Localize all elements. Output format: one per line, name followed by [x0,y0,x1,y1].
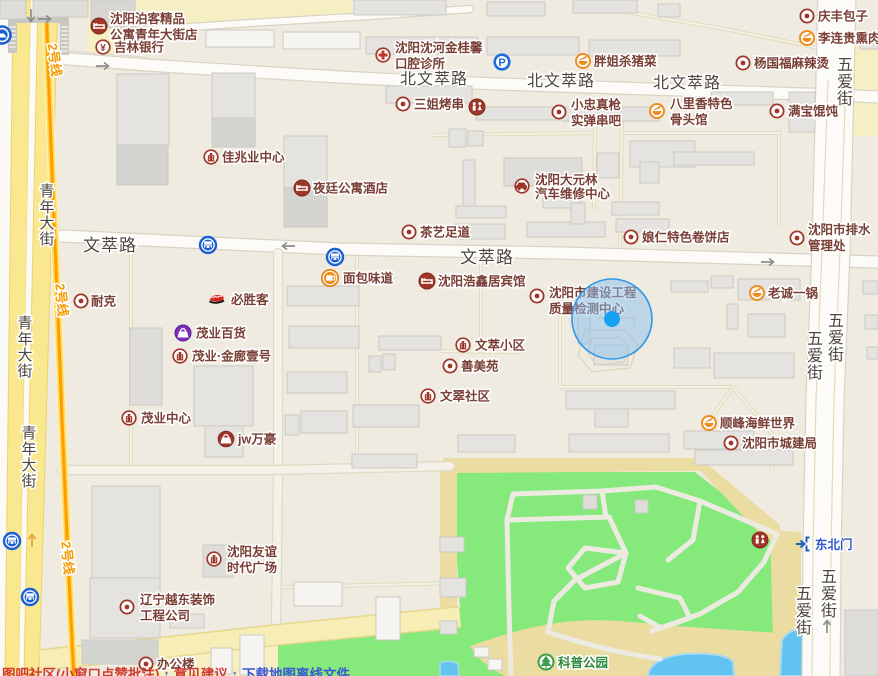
svg-text:汽车维修中心: 汽车维修中心 [535,186,611,201]
svg-text:茂业中心: 茂业中心 [141,411,192,426]
svg-text:北文萃路: 北文萃路 [653,74,721,92]
svg-text:工程公司: 工程公司 [140,608,190,623]
svg-text:胖姐杀猪菜: 胖姐杀猪菜 [593,54,657,69]
svg-text:北文萃路: 北文萃路 [527,72,595,90]
svg-text:管理处: 管理处 [808,238,846,253]
svg-text:老诚一锅: 老诚一锅 [767,286,819,301]
svg-text:文翠社区: 文翠社区 [440,389,491,404]
svg-text:吉林银行: 吉林银行 [114,40,165,55]
svg-text:茂业百货: 茂业百货 [196,326,247,341]
svg-text:P: P [498,57,505,69]
svg-text:三姐烤串: 三姐烤串 [414,97,464,112]
svg-text:jw万豪: jw万豪 [237,432,277,447]
svg-text:东北门: 东北门 [815,537,853,552]
svg-text:茶艺足道: 茶艺足道 [419,225,471,240]
svg-text:佳兆业中心: 佳兆业中心 [222,150,285,165]
svg-text:沈阳沈河金桂馨: 沈阳沈河金桂馨 [395,40,483,55]
svg-text:沈阳泊客精品: 沈阳泊客精品 [110,11,185,26]
svg-text:善美苑: 善美苑 [461,359,499,374]
svg-text:五爱街: 五爱街 [807,331,823,382]
svg-text:五爱街: 五爱街 [828,313,844,364]
svg-text:小忠真枪: 小忠真枪 [570,97,622,112]
svg-text:必胜客: 必胜客 [230,292,269,307]
svg-text:八里香特色: 八里香特色 [669,96,733,111]
svg-text:面包味道: 面包味道 [343,271,394,286]
svg-text:口腔诊所: 口腔诊所 [395,56,446,71]
svg-text:李连贵熏肉大饼: 李连贵熏肉大饼 [817,31,878,46]
svg-text:时代广场: 时代广场 [227,560,277,575]
svg-text:娘仁特色卷饼店: 娘仁特色卷饼店 [642,230,730,245]
svg-text:北文萃路: 北文萃路 [400,70,468,88]
svg-text:五爱街: 五爱街 [821,569,837,620]
svg-text:辽宁越东装饰: 辽宁越东装饰 [140,592,216,607]
svg-text:文萃路: 文萃路 [460,248,514,267]
svg-text:夜廷公寓酒店: 夜廷公寓酒店 [312,181,389,196]
svg-text:顺峰海鲜世界: 顺峰海鲜世界 [720,416,796,431]
svg-text:沈阳浩鑫居宾馆: 沈阳浩鑫居宾馆 [438,274,526,289]
svg-text:骨头馆: 骨头馆 [670,112,708,127]
svg-text:实弹串吧: 实弹串吧 [571,113,622,128]
svg-text:图吧社区(小窗口点赞批注) ↑ 意见建议 ↑ 下载地图离线文: 图吧社区(小窗口点赞批注) ↑ 意见建议 ↑ 下载地图离线文件 [2,666,351,676]
svg-text:耐克: 耐克 [91,294,117,309]
svg-text:五爱街: 五爱街 [837,57,853,108]
svg-text:沈阳市排水: 沈阳市排水 [808,222,871,237]
svg-text:庆丰包子: 庆丰包子 [817,9,869,24]
svg-text:文萃路: 文萃路 [83,236,137,255]
svg-text:沈阳市城建局: 沈阳市城建局 [742,436,817,451]
svg-text:科普公园: 科普公园 [558,655,608,670]
svg-text:杨国福麻辣烫: 杨国福麻辣烫 [754,56,830,71]
svg-text:青年大街: 青年大街 [39,183,54,248]
svg-text:沈阳大元林: 沈阳大元林 [535,172,598,187]
svg-text:五爱街: 五爱街 [796,586,812,637]
svg-text:文萃小区: 文萃小区 [475,338,526,353]
svg-text:满宝馄饨: 满宝馄饨 [788,104,839,119]
svg-text:沈阳友谊: 沈阳友谊 [227,544,278,559]
svg-text:青年大街: 青年大街 [17,315,32,380]
svg-text:¥: ¥ [100,43,106,54]
svg-text:茂业·金廊壹号: 茂业·金廊壹号 [192,349,271,364]
svg-text:青年大街: 青年大街 [21,425,36,490]
